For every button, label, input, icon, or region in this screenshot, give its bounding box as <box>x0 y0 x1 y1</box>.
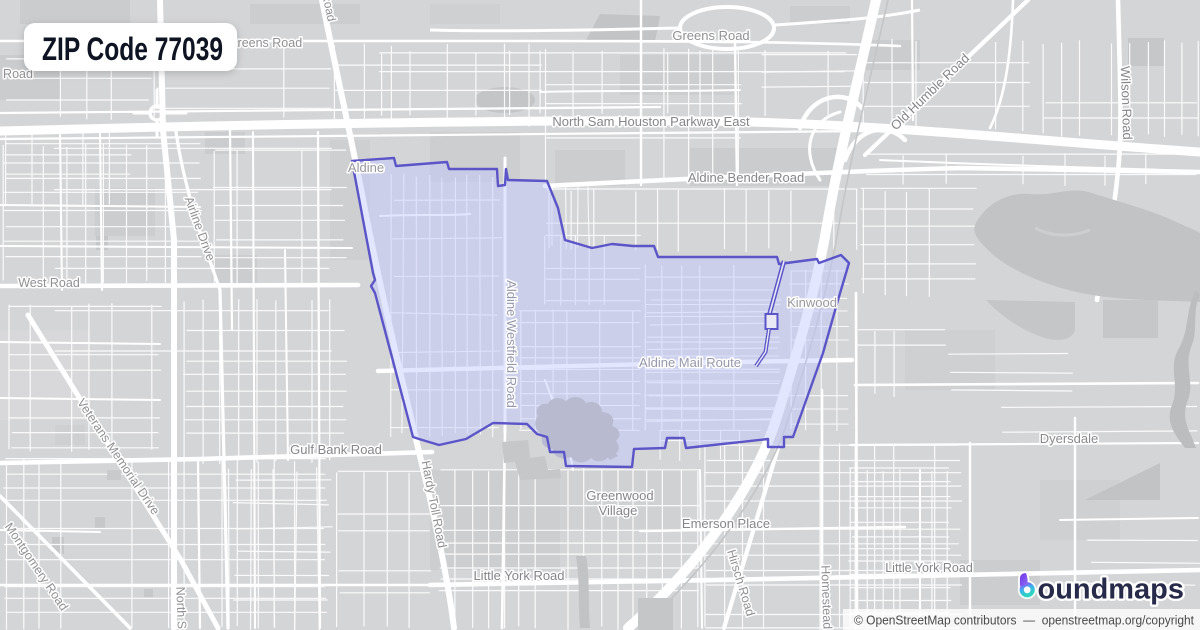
svg-text:Greens Road: Greens Road <box>228 36 302 50</box>
svg-text:North Sam Houston Parkway East: North Sam Houston Parkway East <box>552 114 750 129</box>
svg-text:Aldine Westfield Road: Aldine Westfield Road <box>504 280 519 408</box>
svg-text:Greens Road: Greens Road <box>672 28 749 43</box>
svg-text:Emerson Place: Emerson Place <box>682 516 770 531</box>
svg-text:West Road: West Road <box>18 276 80 290</box>
svg-text:Road: Road <box>3 67 33 81</box>
svg-text:oundmaps: oundmaps <box>1038 574 1185 606</box>
svg-text:Village: Village <box>599 503 638 518</box>
svg-text:Aldine Bender Road: Aldine Bender Road <box>688 170 804 185</box>
svg-text:Greenwood: Greenwood <box>586 488 653 503</box>
svg-text:Little York Road: Little York Road <box>885 561 973 575</box>
svg-text:Dyersdale: Dyersdale <box>1040 431 1099 446</box>
svg-text:Aldine: Aldine <box>348 160 384 175</box>
svg-text:Gulf Bank Road: Gulf Bank Road <box>290 442 382 457</box>
svg-text:© OpenStreetMap contributors: © OpenStreetMap contributors — openstree… <box>854 613 1194 628</box>
svg-text:Aldine Mail Route: Aldine Mail Route <box>639 355 741 370</box>
svg-text:North S: North S <box>173 586 188 629</box>
svg-text:Kinwood: Kinwood <box>787 295 837 310</box>
svg-text:ZIP Code 77039: ZIP Code 77039 <box>42 31 223 67</box>
svg-text:Homestead Road: Homestead Road <box>818 565 835 630</box>
svg-text:Little York Road: Little York Road <box>473 568 564 583</box>
svg-text:Wilson Road: Wilson Road <box>1118 66 1136 140</box>
